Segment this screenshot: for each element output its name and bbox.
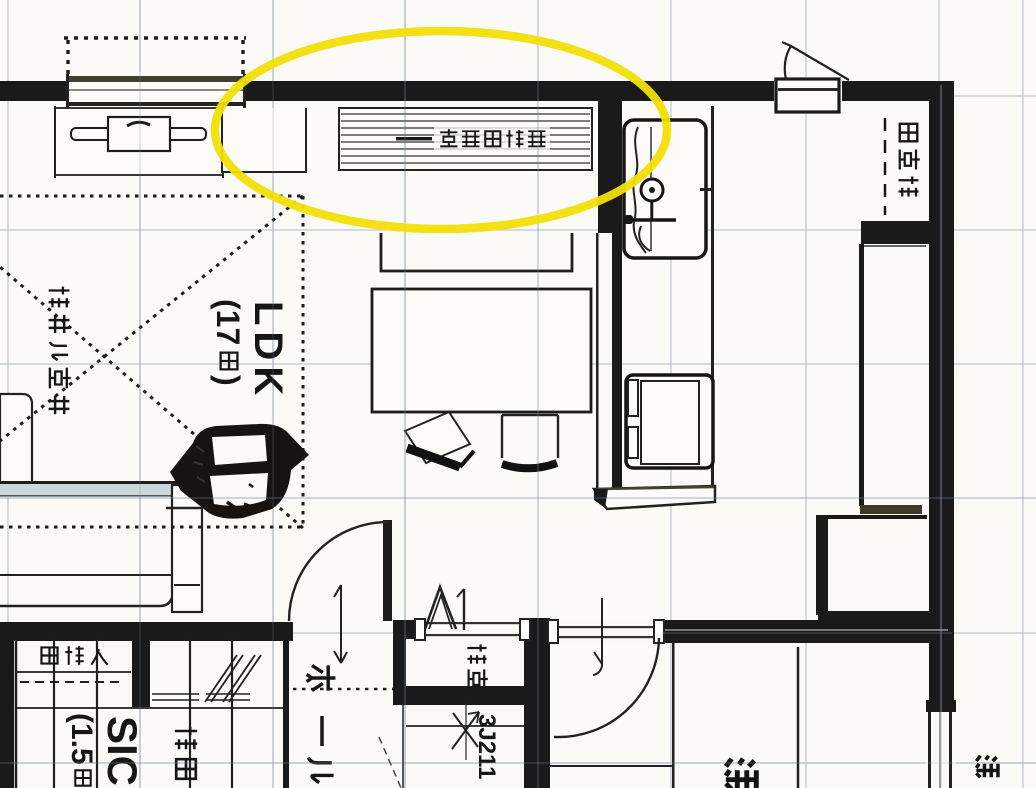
svg-text:3J211: 3J211 bbox=[473, 714, 500, 779]
svg-text:SIC: SIC bbox=[99, 716, 146, 786]
svg-text:LDK: LDK bbox=[246, 301, 290, 401]
svg-text:(1.5: (1.5 bbox=[65, 713, 98, 765]
svg-text:(17: (17 bbox=[210, 299, 246, 345]
svg-text:): ) bbox=[210, 375, 246, 386]
